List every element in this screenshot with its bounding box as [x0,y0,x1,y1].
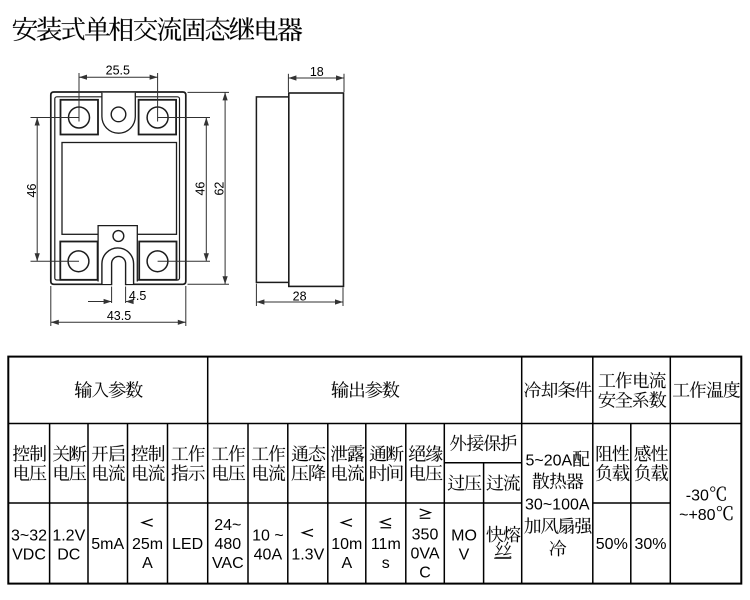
svg-text:C: C [419,565,431,582]
svg-text:4.5: 4.5 [129,289,146,303]
svg-text:-30: -30 [686,488,709,505]
svg-text:40A: 40A [254,546,283,563]
svg-text:1.2V: 1.2V [52,527,85,544]
svg-text:18: 18 [310,65,324,79]
svg-text:25m: 25m [132,536,163,553]
svg-text:10 ~: 10 ~ [252,527,284,544]
svg-text:A: A [142,555,153,572]
svg-text:1.3V: 1.3V [291,546,324,563]
svg-text:30%: 30% [634,536,666,553]
svg-text:480: 480 [214,536,241,553]
svg-text:0VA: 0VA [410,546,439,563]
svg-text:5mA: 5mA [91,536,124,553]
svg-text:28: 28 [293,290,307,304]
svg-text:46: 46 [194,182,208,196]
svg-text:10m: 10m [331,536,362,553]
svg-text:VDC: VDC [12,546,46,563]
svg-text:50%: 50% [596,536,628,553]
svg-text:s: s [382,555,390,572]
svg-text:11m: 11m [371,536,401,553]
svg-text:MO: MO [451,527,477,544]
svg-text:DC: DC [57,546,80,563]
svg-text:V: V [459,546,470,563]
svg-text:A: A [341,555,352,572]
svg-text:5~20A: 5~20A [526,453,573,470]
svg-text:VAC: VAC [212,555,244,572]
svg-text:350: 350 [412,527,439,544]
svg-text:30~100A: 30~100A [525,496,590,513]
svg-text:43.5: 43.5 [107,309,131,323]
svg-text:LED: LED [172,536,203,553]
svg-text:25.5: 25.5 [106,63,130,77]
svg-text:24~: 24~ [214,517,241,534]
svg-text:62: 62 [213,182,227,196]
svg-text:3~32: 3~32 [11,527,47,544]
svg-text:46: 46 [25,184,39,198]
svg-text:~+80: ~+80 [679,507,716,524]
